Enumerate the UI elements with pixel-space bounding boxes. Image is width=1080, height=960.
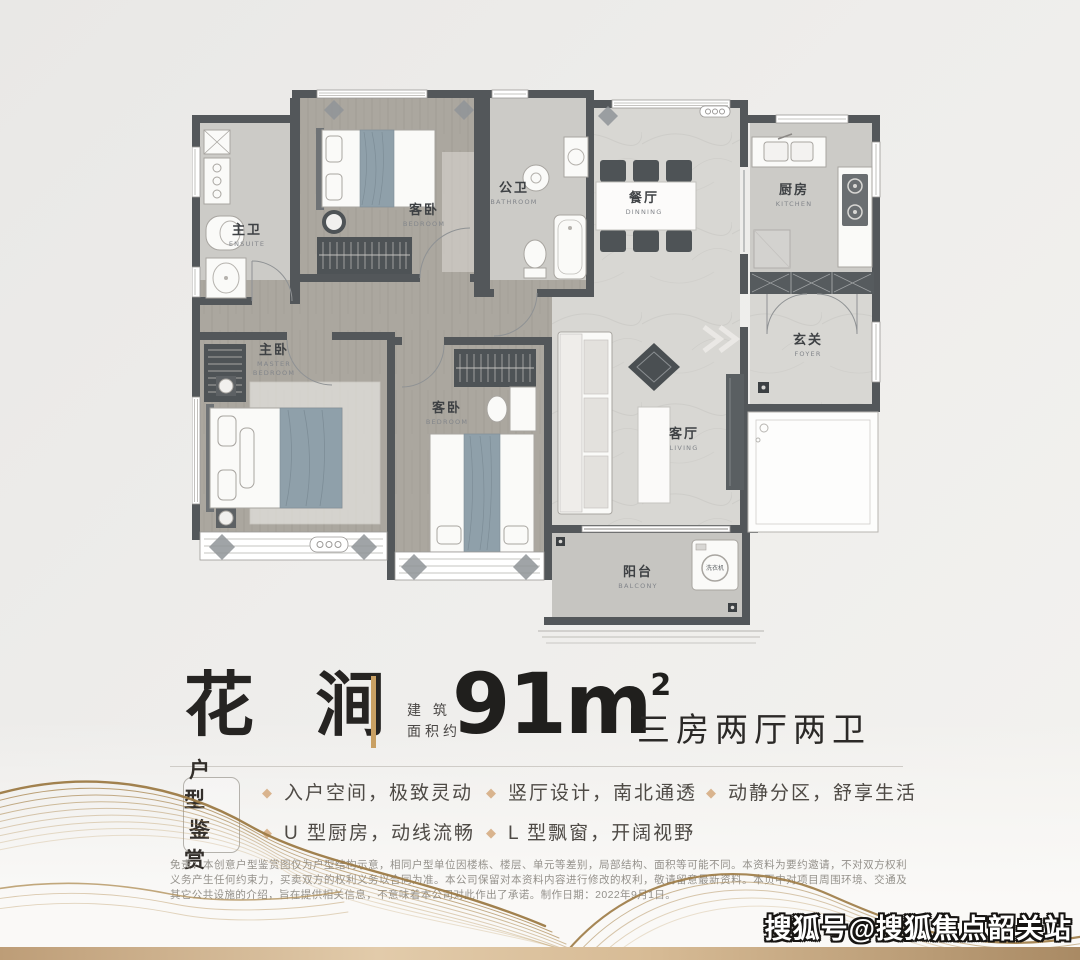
feature-item: ◆L 型飘窗，开阔视野 <box>486 818 695 845</box>
room-label-living: 客厅 <box>669 426 699 442</box>
feature-item: ◆竖厅设计，南北通透 <box>486 778 697 805</box>
gold-divider-bar <box>371 676 376 748</box>
svg-text:DINNING: DINNING <box>626 208 663 216</box>
room-label-kitchen: 厨房 <box>779 182 809 198</box>
tv-console <box>726 374 744 490</box>
svg-text:BEDROOM: BEDROOM <box>426 418 468 426</box>
disclaimer-text: 免责：本创意户型鉴赏图仅为户型结构示意，相同户型单位因楼栋、楼层、单元等差别，局… <box>170 858 907 903</box>
diamond-bullet-icon: ◆ <box>486 825 498 840</box>
toilet-icon <box>524 268 546 278</box>
room-label-master: 主卧 <box>259 342 289 358</box>
room-label-balcony: 阳台 <box>623 564 653 580</box>
feature-item: ◆U 型厨房，动线流畅 <box>262 818 475 845</box>
room-label-bedroom-mid: 客卧 <box>432 400 462 416</box>
floorplan: 主卫 ENSUITE 客卧 BEDROOM 公卫 BATHROOM 餐厅 DIN… <box>192 82 892 662</box>
feature-item: ◆入户空间，极致灵动 <box>262 778 473 805</box>
layout-summary: 三房两厅两卫 <box>637 703 871 751</box>
dining-table <box>596 182 696 230</box>
room-label-foyer: 玄关 <box>793 332 823 348</box>
diamond-bullet-icon: ◆ <box>486 785 498 800</box>
room-label-bedroom-top: 客卧 <box>409 202 439 218</box>
svg-text:MASTER: MASTER <box>257 360 291 368</box>
feature-item: ◆动静分区，舒享生活 <box>706 778 917 805</box>
diamond-bullet-icon: ◆ <box>262 825 274 840</box>
room-label-ensuite: 主卫 <box>232 222 262 238</box>
coffee-table <box>638 407 670 503</box>
section-divider <box>170 766 903 767</box>
svg-text:ENSUITE: ENSUITE <box>229 240 265 248</box>
svg-text:KITCHEN: KITCHEN <box>776 200 813 208</box>
svg-text:BEDROOM: BEDROOM <box>253 369 295 377</box>
stove-icon <box>842 174 868 226</box>
room-label-dining: 餐厅 <box>628 190 659 206</box>
svg-text:BATHROOM: BATHROOM <box>490 198 537 206</box>
svg-text:BALCONY: BALCONY <box>618 582 657 590</box>
floorplan-drawing: 主卫 ENSUITE 客卧 BEDROOM 公卫 BATHROOM 餐厅 DIN… <box>192 82 892 662</box>
watermark: 搜狐号@搜狐焦点韶关站 <box>765 907 1072 946</box>
badge-huxing-jianshang: 户 型 鉴 赏 <box>183 777 240 853</box>
svg-text:BEDROOM: BEDROOM <box>403 220 445 228</box>
room-label-bathroom: 公卫 <box>499 181 529 196</box>
diamond-bullet-icon: ◆ <box>262 785 274 800</box>
svg-text:FOYER: FOYER <box>794 350 821 358</box>
washer-label: 洗衣机 <box>706 564 724 572</box>
svg-text:LIVING: LIVING <box>669 444 698 452</box>
bottom-bronze-band <box>0 947 1080 960</box>
poster: 主卫 ENSUITE 客卧 BEDROOM 公卫 BATHROOM 餐厅 DIN… <box>0 0 1080 960</box>
diamond-bullet-icon: ◆ <box>706 785 718 800</box>
